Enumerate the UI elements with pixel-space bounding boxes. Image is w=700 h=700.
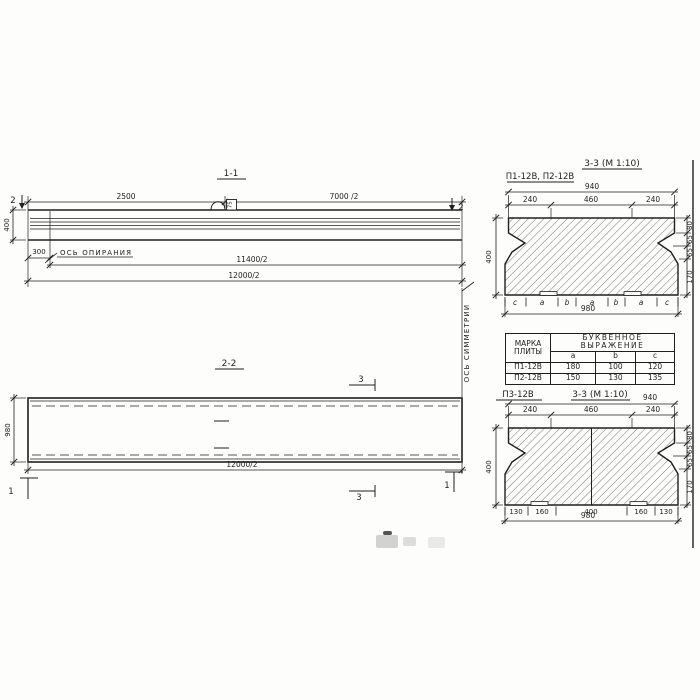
dim-line-top: 2500 7000 /2	[24, 192, 466, 205]
table-cell-a: 180	[551, 362, 596, 373]
symmetry-axis: ОСЬ СИММЕТРИИ	[462, 282, 474, 397]
cross-section-bottom: П3-12В 3-3 (М 1:10) 940 240 460 240	[485, 390, 694, 524]
dim-12000-bottom-label: 12000/2	[226, 460, 257, 469]
dim-980-plan-label: 980	[4, 423, 12, 436]
dim-400-cross-top: 400	[485, 214, 503, 299]
dim-400-label: 400	[3, 218, 11, 231]
cross-bottom-title: 3-3 (М 1:10)	[572, 390, 627, 400]
dim-130-l: 130	[509, 508, 522, 516]
dim-940-top-label: 940	[585, 182, 600, 191]
dim-980-cross-top-label: 980	[581, 304, 596, 313]
dim-130-r: 130	[659, 508, 672, 516]
cross-top-title: 3-3 (М 1:10)	[584, 159, 639, 169]
dim-12000-top: 12000/2	[24, 271, 466, 284]
letter-b2: b	[614, 298, 619, 307]
bottom-groove-right-b	[630, 502, 647, 506]
dim-460-b: 460	[584, 405, 599, 414]
lifting-loop: 75	[211, 200, 237, 211]
dim-980-left: 980	[4, 394, 26, 466]
cut-mark-2-right-label: 2	[458, 203, 463, 213]
section-2-2-view: 2-2 3 980 12000/2	[4, 282, 474, 503]
dim-400-left: 400	[3, 206, 26, 244]
dim-2500: 2500	[116, 192, 135, 201]
table-subheader-a: a	[551, 351, 596, 362]
dim-400-cross-bottom-label: 400	[485, 460, 493, 473]
cut-mark-2-left-label: 2	[10, 196, 15, 206]
table-cell-b: 130	[596, 373, 636, 384]
letter-b1: b	[565, 298, 570, 307]
section-2-2-title: 2-2	[222, 359, 237, 369]
table-cell-mark: П2-12В	[506, 373, 551, 384]
letter-a3: a	[639, 298, 644, 307]
symmetry-axis-label: ОСЬ СИММЕТРИИ	[463, 304, 471, 383]
letter-values-table: МАРКА ПЛИТЫ БУКВЕННОЕ ВЫРАЖЕНИЕ a b c П1…	[505, 333, 675, 385]
dim-160-l: 160	[535, 508, 548, 516]
cut-mark-3-top: 3	[349, 375, 375, 391]
cut-mark-1-right: 1	[444, 472, 463, 492]
dim-12000-label: 12000/2	[228, 271, 259, 280]
letter-a1: a	[540, 298, 545, 307]
engineering-drawing-sheet: 1-1 2500 7000 /2 2 2	[0, 0, 700, 700]
cross-bottom-mark-label: П3-12В	[502, 390, 534, 400]
dim-11400-label: 11400/2	[236, 255, 267, 264]
table-header-mark: МАРКА ПЛИТЫ	[506, 334, 551, 363]
scan-smudge	[403, 537, 416, 546]
beam-elevation-body	[28, 210, 462, 240]
cut-mark-3-bottom-label: 3	[356, 493, 361, 503]
cut-mark-2-left: 2	[10, 195, 25, 209]
table-subheader-c: c	[636, 351, 675, 362]
dim-240-right-b: 240	[646, 405, 661, 414]
dim-7000-2: 7000 /2	[330, 192, 359, 201]
plan-outline	[28, 398, 462, 462]
cross-top-mark-label: П1-12В, П2-12В	[506, 172, 575, 182]
dim-940-bottom-label: 940	[643, 393, 658, 402]
dim-940-top: 940	[505, 182, 678, 195]
dim-240-left-b: 240	[523, 405, 538, 414]
table-row: П2-12В 150 130 135	[506, 373, 675, 384]
loop-label: 75	[228, 201, 234, 208]
table-cell-mark: П1-12В	[506, 362, 551, 373]
scan-smudge	[428, 537, 445, 548]
letter-c2: c	[665, 298, 670, 307]
cut-mark-3-bottom: 3	[349, 485, 375, 503]
bearing-axis-label: ОСЬ ОПИРАНИЯ	[60, 249, 132, 257]
scan-smudge	[376, 535, 398, 548]
letter-c1: c	[513, 298, 518, 307]
cut-mark-1-right-label: 1	[444, 481, 449, 491]
dim-240-right: 240	[646, 195, 661, 204]
cross-top-body	[505, 218, 678, 295]
cross-section-top: 3-3 (М 1:10) П1-12В, П2-12В 940 240 460 …	[485, 159, 694, 317]
table-row: П1-12В 180 100 120	[506, 362, 675, 373]
cut-mark-3-top-label: 3	[358, 375, 363, 385]
section-1-1-title: 1-1	[224, 169, 239, 179]
table-cell-c: 135	[636, 373, 675, 384]
dims-240-460-240-top: 240 460 240	[505, 195, 678, 218]
dim-160-r: 160	[634, 508, 647, 516]
table-cell-a: 150	[551, 373, 596, 384]
table-header-expression: БУКВЕННОЕ ВЫРАЖЕНИЕ	[551, 334, 675, 352]
dim-400-cross-top-label: 400	[485, 250, 493, 263]
dims-240-460-240-bottom: 240 460 240	[505, 405, 678, 428]
bottom-groove-left-b	[531, 502, 548, 506]
bottom-groove-right	[624, 292, 641, 296]
table-cell-c: 120	[636, 362, 675, 373]
section-1-1-view: 1-1 2500 7000 /2 2 2	[3, 169, 466, 287]
dim-240-left: 240	[523, 195, 538, 204]
cut-mark-1-left: 1	[8, 478, 38, 499]
dim-300-label: 300	[32, 248, 45, 256]
cut-mark-1-left-label: 1	[8, 487, 13, 497]
bottom-groove-left	[540, 292, 557, 296]
table-subheader-b: b	[596, 351, 636, 362]
dim-460: 460	[584, 195, 599, 204]
dim-980-cross-bottom-label: 980	[581, 511, 596, 520]
dim-400-cross-bottom: 400	[485, 424, 503, 509]
letter-values-table-wrap: МАРКА ПЛИТЫ БУКВЕННОЕ ВЫРАЖЕНИЕ a b c П1…	[505, 333, 675, 385]
table-cell-b: 100	[596, 362, 636, 373]
